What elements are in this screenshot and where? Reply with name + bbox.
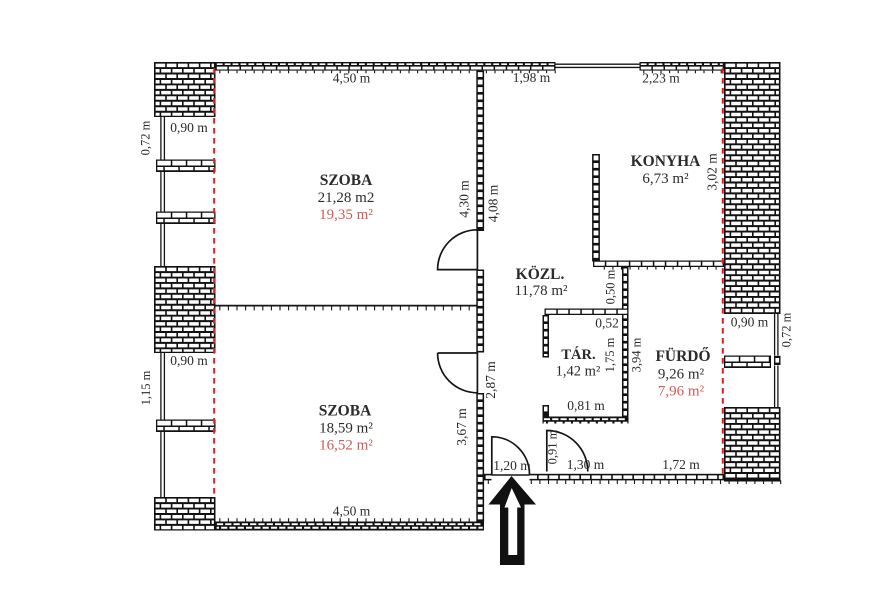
svg-text:3,94 m: 3,94 m <box>629 337 643 372</box>
svg-text:KÖZL.: KÖZL. <box>516 266 565 283</box>
svg-text:KONYHA: KONYHA <box>631 153 702 170</box>
svg-text:1,15 m: 1,15 m <box>139 370 153 405</box>
svg-text:SZOBA: SZOBA <box>319 403 372 420</box>
svg-text:3,02 m: 3,02 m <box>705 153 720 191</box>
svg-text:0,72 m: 0,72 m <box>779 312 793 347</box>
svg-text:1,42 m²: 1,42 m² <box>556 363 601 379</box>
svg-text:0,91 m: 0,91 m <box>545 429 559 464</box>
svg-text:0,81 m: 0,81 m <box>567 398 605 413</box>
svg-text:0,72 m: 0,72 m <box>138 120 152 155</box>
svg-text:4,50 m: 4,50 m <box>333 71 371 86</box>
svg-text:0,90 m: 0,90 m <box>170 120 208 135</box>
svg-text:1,20 m: 1,20 m <box>493 458 531 473</box>
svg-text:0,52: 0,52 <box>595 316 619 331</box>
svg-text:1,98 m: 1,98 m <box>513 70 551 85</box>
svg-text:1,72 m: 1,72 m <box>662 457 700 472</box>
svg-text:3,67 m: 3,67 m <box>454 408 469 446</box>
svg-text:4,08 m: 4,08 m <box>486 184 501 222</box>
svg-text:0,90 m: 0,90 m <box>731 315 769 330</box>
svg-text:SZOBA: SZOBA <box>320 172 373 189</box>
svg-text:19,35 m²: 19,35 m² <box>319 207 373 223</box>
svg-text:FÜRDŐ: FÜRDŐ <box>655 348 710 365</box>
svg-text:4,30 m: 4,30 m <box>457 180 472 218</box>
svg-text:2,23 m: 2,23 m <box>642 71 680 86</box>
svg-text:0,50 m: 0,50 m <box>603 269 617 304</box>
svg-text:9,26 m²: 9,26 m² <box>658 366 705 382</box>
svg-text:11,78 m²: 11,78 m² <box>514 283 568 299</box>
svg-text:0,90 m: 0,90 m <box>170 353 208 368</box>
svg-text:21,28 m2: 21,28 m2 <box>318 190 375 206</box>
svg-text:18,59 m²: 18,59 m² <box>319 420 373 436</box>
svg-text:1,75 m: 1,75 m <box>603 337 617 372</box>
svg-text:TÁR.: TÁR. <box>561 346 595 363</box>
svg-text:16,52 m²: 16,52 m² <box>319 437 373 453</box>
svg-text:4,50 m: 4,50 m <box>333 504 371 519</box>
svg-text:6,73 m²: 6,73 m² <box>642 171 689 187</box>
svg-text:7,96 m²: 7,96 m² <box>658 383 705 399</box>
svg-text:2,87 m: 2,87 m <box>483 361 498 399</box>
svg-text:1,30 m: 1,30 m <box>567 457 605 472</box>
